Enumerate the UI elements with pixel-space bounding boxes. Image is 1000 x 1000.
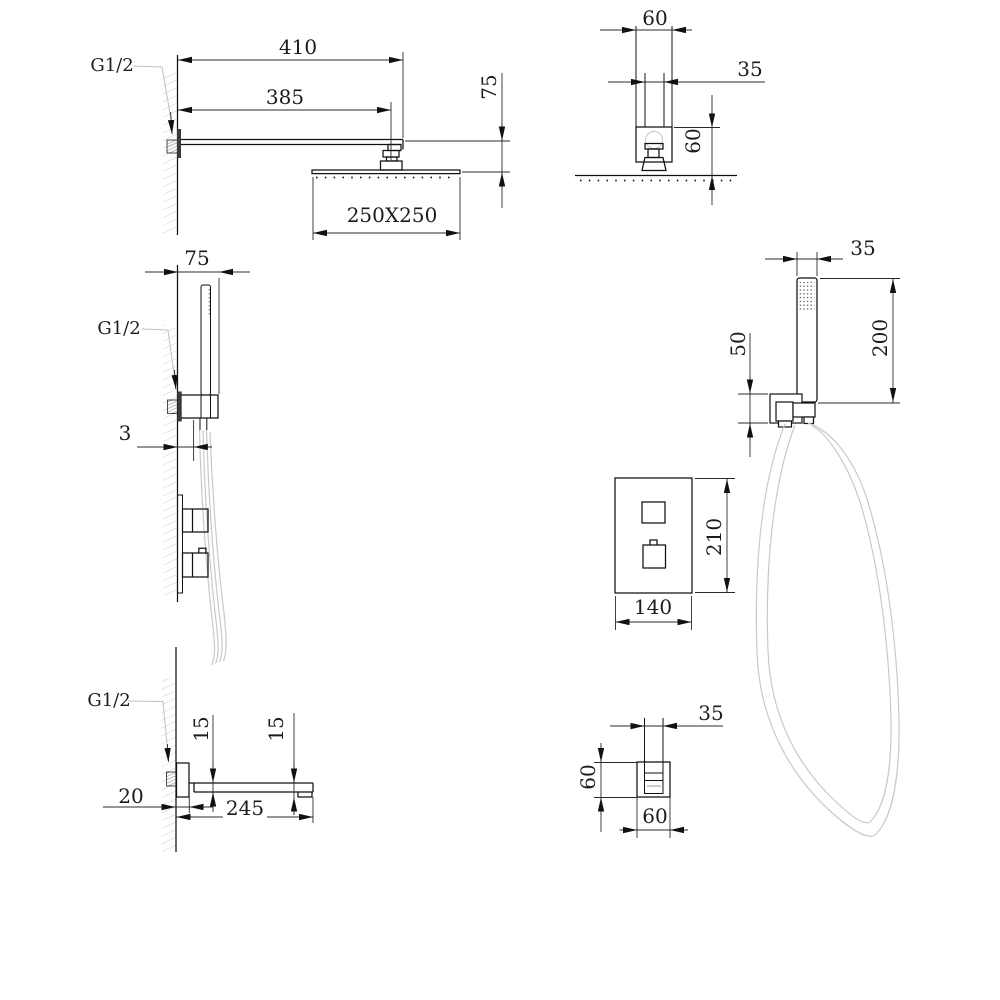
hose-hanging-side [200,430,227,665]
dim-flange-drop-label: 60 [683,128,703,153]
thread-connector [167,772,177,786]
dim-arm-length-label: 385 [266,87,304,107]
thread-label-hand: G1/2 [97,320,140,338]
arm-flange-front [636,127,672,171]
dim-flange-width-label: 60 [642,8,667,28]
dim-arm-width-label: 35 [737,59,762,79]
dim-head-size-label: 250X250 [347,205,438,225]
dim-wand-width [765,252,843,276]
spout-wall-plate [177,763,190,797]
view-hand-shower-side [137,265,250,665]
dim-plate-height-label: 210 [704,518,724,556]
dim-front-height-label: 60 [578,764,598,789]
wand-spray-face [800,282,815,310]
spout-mouth [645,773,664,794]
dim-tip-height-label: 15 [266,716,286,741]
valve-plate [615,478,692,593]
dim-plate-thickness-label: 3 [119,423,132,443]
dim-bracket-height-label: 50 [728,331,748,356]
bracket-wall-flange [178,392,182,422]
view-spout-side [103,647,313,852]
arm-front-lines [636,26,672,127]
dim-body-height-label: 15 [191,716,211,741]
thread-connector [168,400,178,414]
wall-hatching [163,325,177,595]
dim-wall-offset [145,272,250,394]
shower-head-plate [312,170,460,174]
valve-side-profile [178,495,209,593]
dim-overall-reach-label: 410 [279,37,317,57]
wand-bracket-front [770,394,815,427]
drawing-linework [0,0,1000,1000]
arm-wall-flange [177,129,181,158]
shower-hose-loop [756,423,899,836]
view-rain-shower-front [575,26,765,205]
dim-wall-offset-label: 75 [184,248,209,268]
dim-wall-plate-depth-label: 20 [118,786,143,806]
thread-label-rain: G1/2 [90,57,133,75]
dim-wand-width-label: 35 [850,238,875,258]
thread-label-spout: G1/2 [87,692,130,710]
dim-front-width-label: 60 [642,806,667,826]
dim-plate-width-label: 140 [634,597,672,617]
dim-arm-length [178,102,391,160]
thread-connector [167,140,178,153]
dim-wand-length-label: 200 [870,319,890,357]
view-rain-shower-side [133,52,510,240]
dim-head-drop-label: 75 [479,74,499,99]
dim-spout-length-label: 245 [223,798,267,818]
dim-front-height [594,743,637,832]
wand-bracket [180,395,218,418]
technical-drawing-sheet: G1/2 410 385 75 250X250 60 35 60 75 G1/2… [0,0,1000,1000]
hose-outlet [200,418,207,430]
shower-arm [181,140,403,171]
dim-spout-width-label: 35 [698,703,723,723]
wall-hatching [163,72,177,235]
spout-front-body [637,762,670,797]
